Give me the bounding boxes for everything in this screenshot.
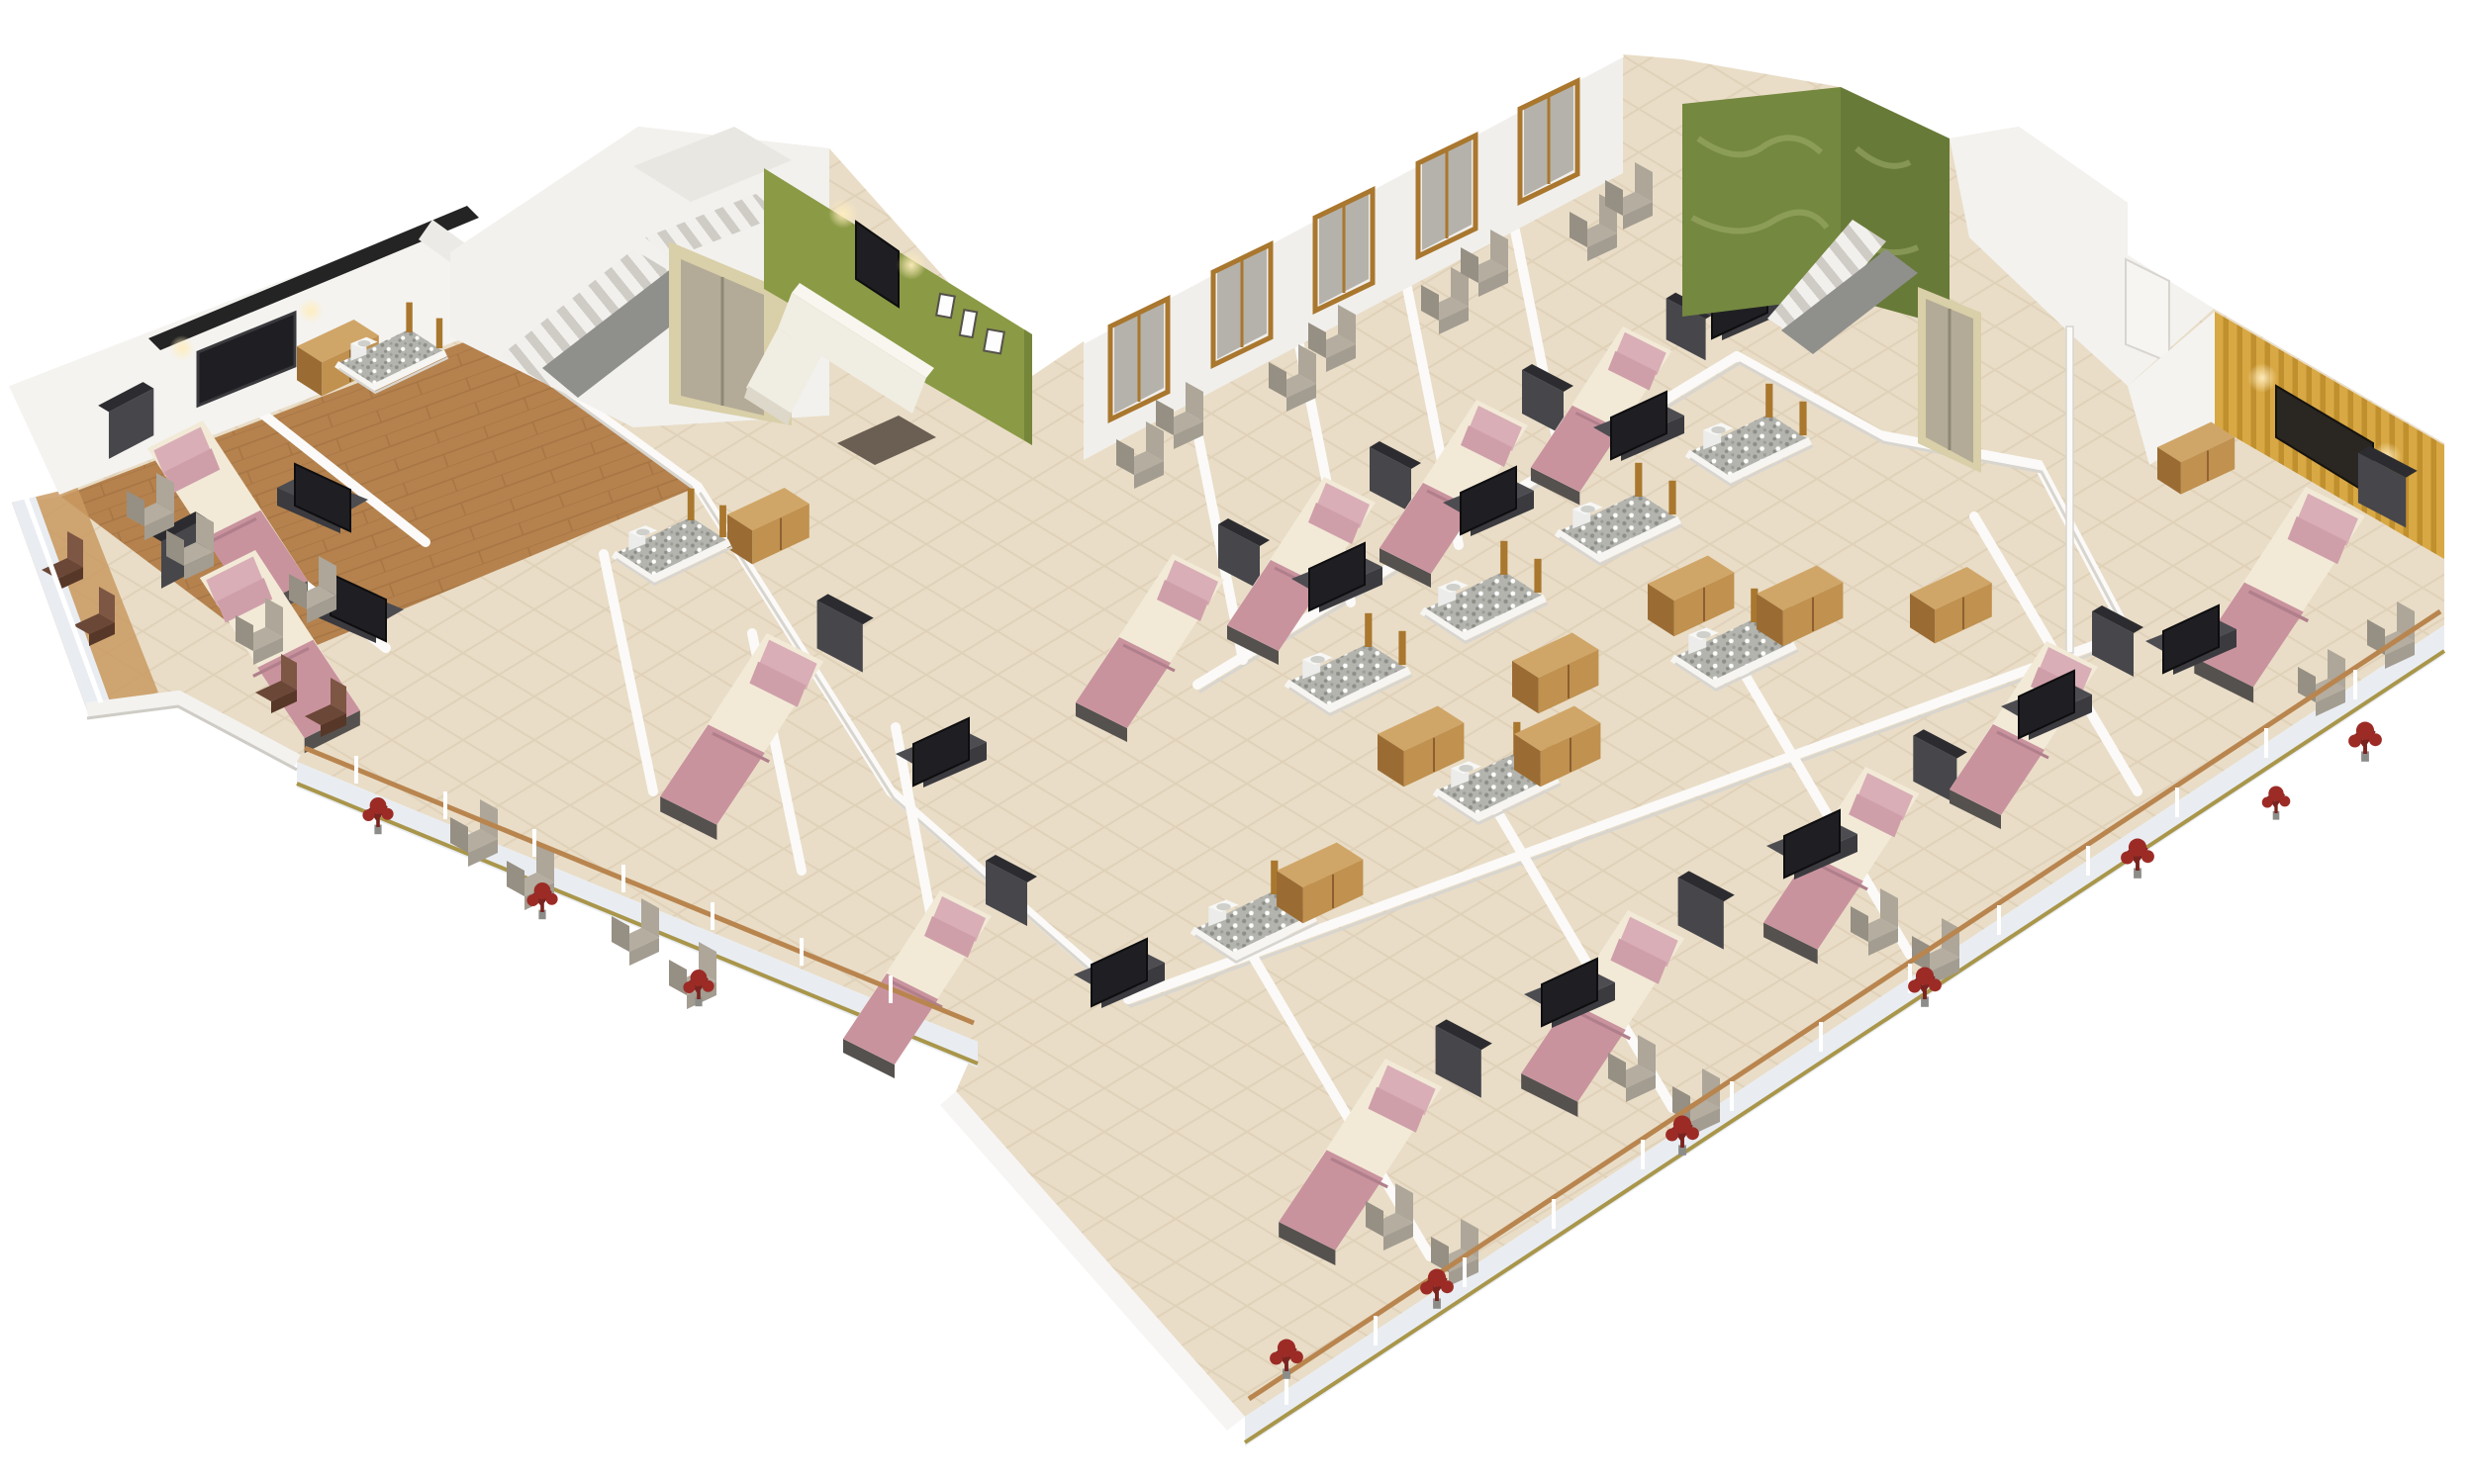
red-plant [2348,722,2382,762]
sconce-icon [298,298,324,324]
elevator [1918,287,1981,473]
sconce-icon [897,250,926,280]
open-door-leaf [2126,259,2169,362]
sconce-icon [2247,363,2277,393]
sconce-icon [828,199,858,229]
floor-plan-3d-render [0,0,2474,1484]
red-plant [2262,787,2291,820]
sconce-icon [169,335,195,361]
green-wall-edge [1024,329,1032,445]
floor-plan-stage [0,0,2474,1484]
service-mast [2066,326,2073,653]
